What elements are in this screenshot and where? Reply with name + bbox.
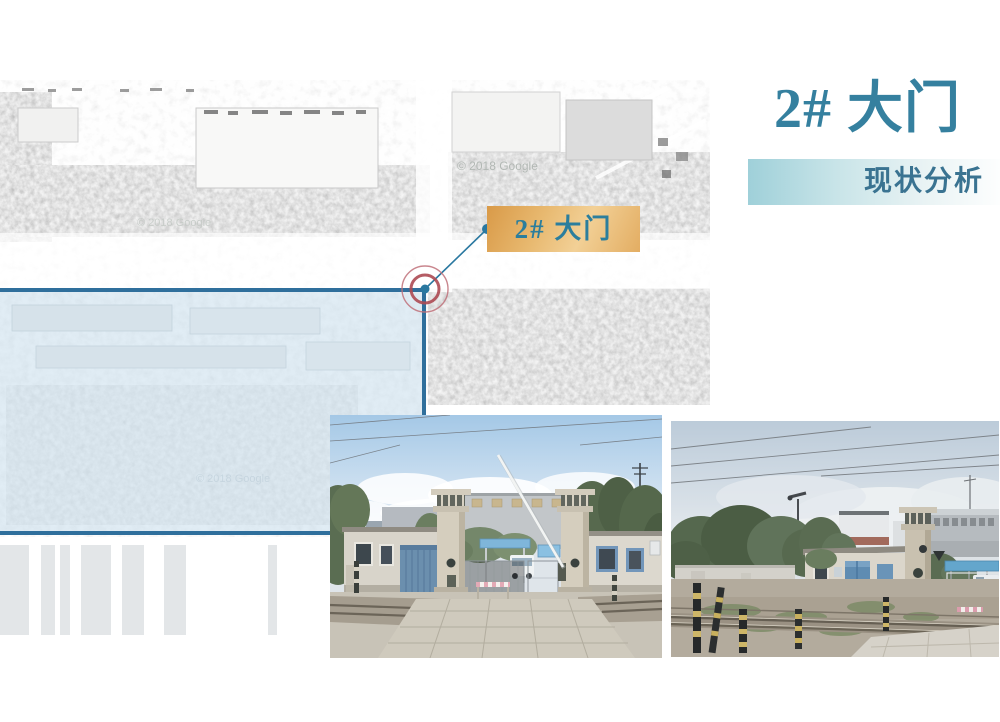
barcode-bar	[268, 545, 277, 635]
right-guard-house	[582, 531, 662, 592]
gate-callout-label: 2# 大门	[487, 206, 640, 252]
slide: © 2018 Google © 2018 Google © 2018 Googl…	[0, 0, 1000, 722]
photo-gate-front	[330, 415, 662, 658]
map-watermark: © 2018 Google	[137, 217, 211, 229]
barcode-bar	[41, 545, 55, 635]
photo-gate-side	[671, 421, 999, 657]
barcode-bar	[81, 545, 111, 635]
barcode-bar	[164, 545, 186, 635]
map-watermark: © 2018 Google	[457, 159, 538, 173]
barcode-bar	[0, 545, 29, 635]
section-subtitle: 现状分析	[748, 159, 1000, 205]
barcode-bar	[60, 545, 70, 635]
barcode-bar	[122, 545, 144, 635]
page-title: 2# 大门	[735, 70, 1000, 148]
